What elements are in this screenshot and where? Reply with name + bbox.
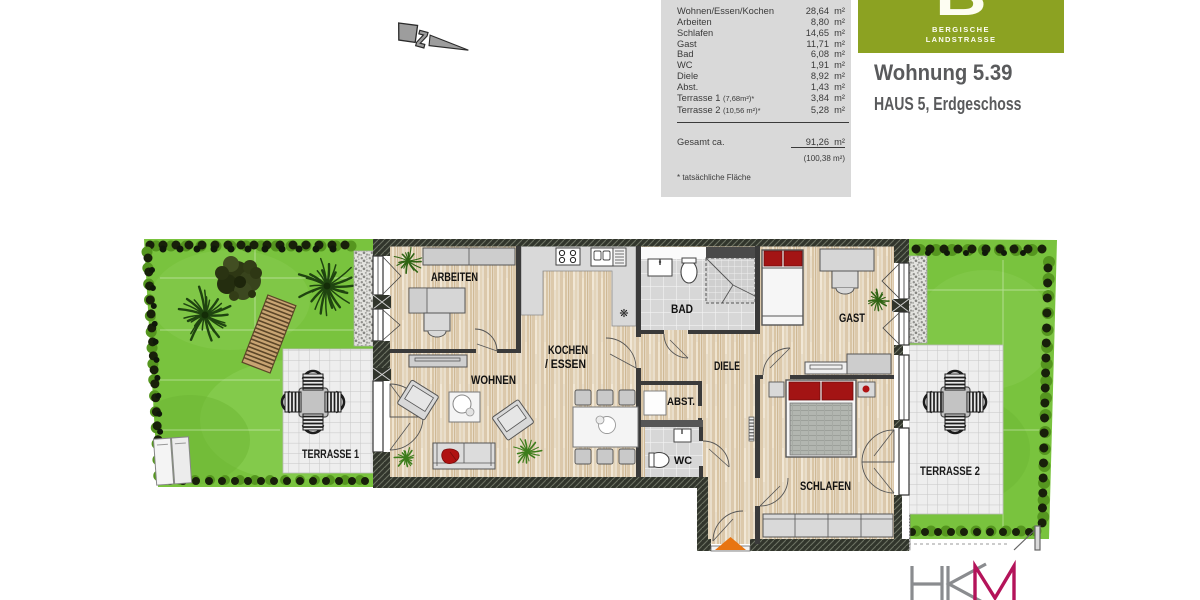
svg-text:ABST.: ABST. [667,396,695,408]
svg-text:TERRASSE 1: TERRASSE 1 [302,447,359,461]
svg-text:GAST: GAST [839,311,866,325]
svg-text:/ ESSEN: / ESSEN [545,357,586,371]
svg-text:BAD: BAD [671,302,693,316]
svg-text:SCHLAFEN: SCHLAFEN [800,479,851,493]
svg-text:DIELE: DIELE [714,359,740,373]
svg-text:❋: ❋ [619,308,628,320]
svg-text:WC: WC [674,455,692,467]
svg-text:TERRASSE 2: TERRASSE 2 [920,464,980,478]
svg-text:ARBEITEN: ARBEITEN [431,270,478,284]
svg-text:KOCHEN: KOCHEN [548,343,588,357]
svg-text:WOHNEN: WOHNEN [471,373,516,387]
